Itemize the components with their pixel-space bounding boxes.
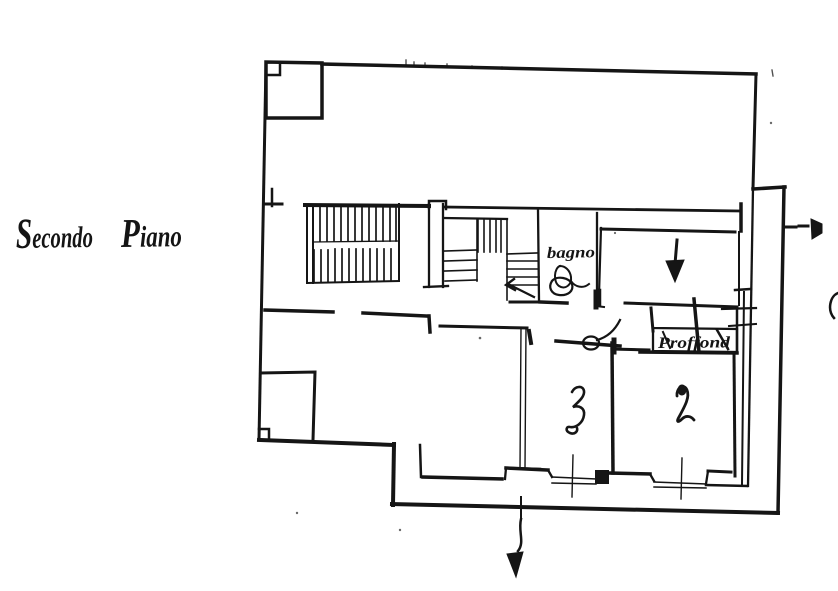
svg-text:bagno: bagno [547, 244, 595, 262]
svg-text:Proffond: Proffond [657, 334, 732, 352]
